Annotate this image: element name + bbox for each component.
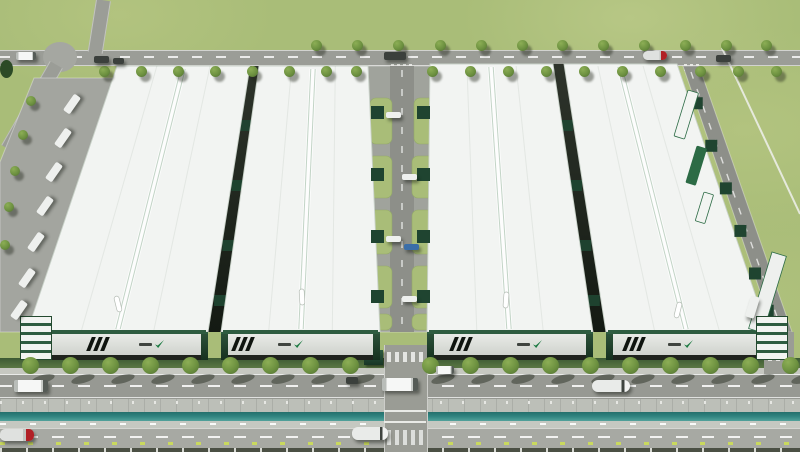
- industrial-park-aerial-render: [0, 0, 800, 452]
- truck-white: [402, 174, 417, 180]
- facade-logo-text: [139, 343, 152, 346]
- central-corridor-road: [390, 66, 414, 332]
- tree: [302, 357, 319, 374]
- truck-white: [386, 236, 401, 242]
- tree: [662, 357, 679, 374]
- truck-dark: [716, 55, 731, 62]
- facade-plinth: [27, 355, 208, 360]
- tree: [210, 66, 221, 77]
- tree: [351, 66, 362, 77]
- east-loading-dock: [705, 140, 717, 152]
- tree: [18, 130, 28, 140]
- tree: [4, 202, 14, 212]
- facade-end-cap: [201, 334, 208, 360]
- tree: [617, 66, 628, 77]
- corridor-dock-right: [417, 290, 430, 303]
- tree: [579, 66, 590, 77]
- corridor-grass-patch: [370, 98, 392, 144]
- facade-logo-text: [517, 343, 530, 346]
- corridor-dock-left: [371, 106, 384, 119]
- truck-white: [386, 112, 401, 118]
- corridor-dock-left: [371, 168, 384, 181]
- facade-logo-text: [278, 343, 291, 346]
- corridor-dock-right: [417, 168, 430, 181]
- facade-logo-text: [668, 343, 681, 346]
- gap-loading-dock: [579, 240, 591, 251]
- tree: [503, 66, 514, 77]
- truck-tanker: [592, 380, 630, 392]
- tree: [598, 40, 609, 51]
- tree: [542, 357, 559, 374]
- truck-dark: [113, 58, 124, 64]
- roof-skylight: [299, 289, 305, 305]
- tree: [247, 66, 258, 77]
- truck-blue: [404, 244, 419, 250]
- east-loading-dock: [749, 267, 761, 279]
- tree: [173, 66, 184, 77]
- tree: [465, 66, 476, 77]
- tree: [541, 66, 552, 77]
- tree: [352, 40, 363, 51]
- tree: [321, 66, 332, 77]
- frontage-crosswalk: [387, 430, 423, 445]
- office-block: [20, 316, 52, 360]
- tree: [733, 66, 744, 77]
- gap-loading-dock: [588, 295, 600, 306]
- facade-logo-emblem: [294, 340, 303, 348]
- tree: [476, 40, 487, 51]
- facade-end-cap: [373, 334, 380, 360]
- truck-white: [402, 296, 417, 302]
- tree: [311, 40, 322, 51]
- tree: [262, 357, 279, 374]
- facade-logo-emblem: [533, 340, 542, 348]
- tree: [462, 357, 479, 374]
- entrance-crosswalk: [387, 352, 423, 362]
- facade-logo-emblem: [684, 340, 693, 348]
- tree: [0, 240, 10, 250]
- tree: [639, 40, 650, 51]
- warehouse-3-facade: [427, 332, 593, 360]
- corridor-dock-left: [371, 290, 384, 303]
- warehouse-2-facade: [221, 332, 380, 360]
- tree: [102, 357, 119, 374]
- tree: [284, 66, 295, 77]
- office-block: [756, 316, 788, 360]
- east-loading-dock: [720, 182, 732, 194]
- tree: [622, 357, 639, 374]
- bridge-rail-lower: [384, 421, 426, 423]
- tree: [557, 40, 568, 51]
- tree: [26, 96, 36, 106]
- truck-dark: [346, 377, 358, 384]
- facade-end-cap: [606, 334, 613, 360]
- tree: [222, 357, 239, 374]
- truck-redtanker: [643, 51, 667, 60]
- tree: [702, 357, 719, 374]
- tree: [517, 40, 528, 51]
- warehouse-1-facade: [27, 332, 208, 360]
- tree: [136, 66, 147, 77]
- corridor-dock-right: [417, 106, 430, 119]
- tree: [761, 40, 772, 51]
- truck-redtanker: [0, 429, 34, 441]
- tree: [22, 357, 39, 374]
- east-loading-dock: [734, 225, 746, 237]
- tree: [771, 66, 782, 77]
- truck-box: [16, 52, 36, 60]
- tree: [182, 357, 199, 374]
- tree: [142, 357, 159, 374]
- tree: [393, 40, 404, 51]
- truck-dark: [94, 56, 109, 63]
- tree: [427, 66, 438, 77]
- tree: [680, 40, 691, 51]
- facade-end-cap: [221, 334, 228, 360]
- tree: [10, 166, 20, 176]
- facade-logo-emblem: [155, 340, 164, 348]
- warehouse-4-facade: [606, 332, 768, 360]
- tree: [62, 357, 79, 374]
- tree: [695, 66, 706, 77]
- truck-box: [14, 380, 48, 392]
- truck-box: [382, 378, 418, 391]
- tree: [655, 66, 666, 77]
- gap-loading-dock: [214, 295, 226, 306]
- tree: [742, 357, 759, 374]
- tree: [99, 66, 110, 77]
- truck-dark: [384, 52, 406, 60]
- tree: [721, 40, 732, 51]
- truck-tanker: [352, 427, 388, 440]
- tree: [582, 357, 599, 374]
- tree: [435, 40, 446, 51]
- tree: [502, 357, 519, 374]
- roof-skylight: [503, 292, 509, 308]
- corridor-dock-right: [417, 230, 430, 243]
- tree: [342, 357, 359, 374]
- tree: [782, 357, 799, 374]
- bridge-rail-upper: [384, 410, 426, 412]
- corridor-dock-left: [371, 230, 384, 243]
- truck-box: [436, 366, 454, 374]
